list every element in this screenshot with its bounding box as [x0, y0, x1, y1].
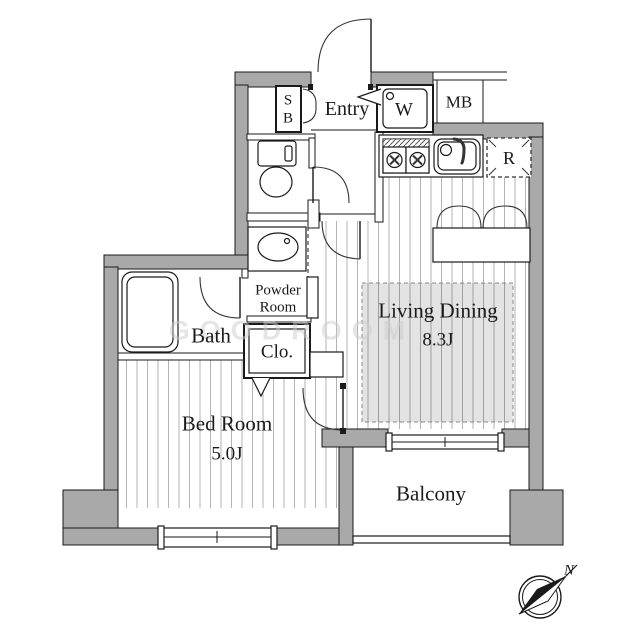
wall-balcony-left — [339, 447, 353, 545]
living-dining-label: Living Dining — [378, 301, 498, 322]
balcony-label: Balcony — [396, 484, 466, 505]
toilet-icon — [258, 141, 296, 197]
shoebox-label-s: S — [284, 94, 292, 109]
bath-label: Bath — [191, 326, 231, 347]
washer-label: W — [395, 101, 413, 120]
wall-toilet-right-upper — [309, 138, 315, 168]
wall-balcony-pillar — [510, 490, 563, 545]
living-window-icon — [386, 433, 504, 451]
wall-bath-top — [104, 255, 248, 269]
powder-room-label-line2: Room — [260, 301, 297, 316]
living-dining-size-label: 8.3J — [422, 331, 453, 350]
powder-room-label-line1: Powder — [255, 284, 301, 299]
wall-bottom-left — [63, 528, 160, 545]
bedroom-size-label: 5.0J — [211, 445, 242, 464]
toilet-door-icon — [313, 167, 349, 203]
closet-extension — [310, 352, 343, 377]
meter-box-label: MB — [446, 94, 472, 111]
shoebox-door-icon — [303, 89, 316, 123]
floor-plan: GOODROOM Entry S B W MB R Powder Room Cl… — [0, 0, 640, 640]
wall-bath-bottom — [118, 353, 248, 360]
washbasin-icon — [248, 227, 306, 271]
refrigerator-label: R — [503, 149, 515, 167]
living-counter — [433, 228, 530, 262]
wall-left-lower — [104, 267, 118, 492]
wall-bath-powder-divider — [242, 269, 248, 278]
stove-icon — [383, 139, 429, 173]
balcony-fence — [353, 536, 510, 543]
wall-left-upper — [235, 85, 248, 269]
compass-north-label: N — [564, 564, 574, 579]
sink-icon — [434, 139, 480, 174]
bath-door-icon — [200, 277, 240, 318]
closet-label: Clo. — [261, 343, 293, 362]
bedroom-window-icon — [158, 526, 277, 549]
wall-cross-junction — [308, 200, 319, 228]
bedroom-label: Bed Room — [182, 414, 272, 435]
kitchen-counter — [379, 135, 483, 177]
entry-label: Entry — [325, 99, 369, 119]
wall-living-bottom-left — [322, 429, 388, 447]
wall-toilet-top — [247, 134, 315, 140]
shoebox-label-b: B — [283, 112, 293, 127]
powder-room-door — [307, 277, 318, 318]
entry-door-icon — [308, 19, 373, 90]
wall-right — [529, 137, 543, 492]
